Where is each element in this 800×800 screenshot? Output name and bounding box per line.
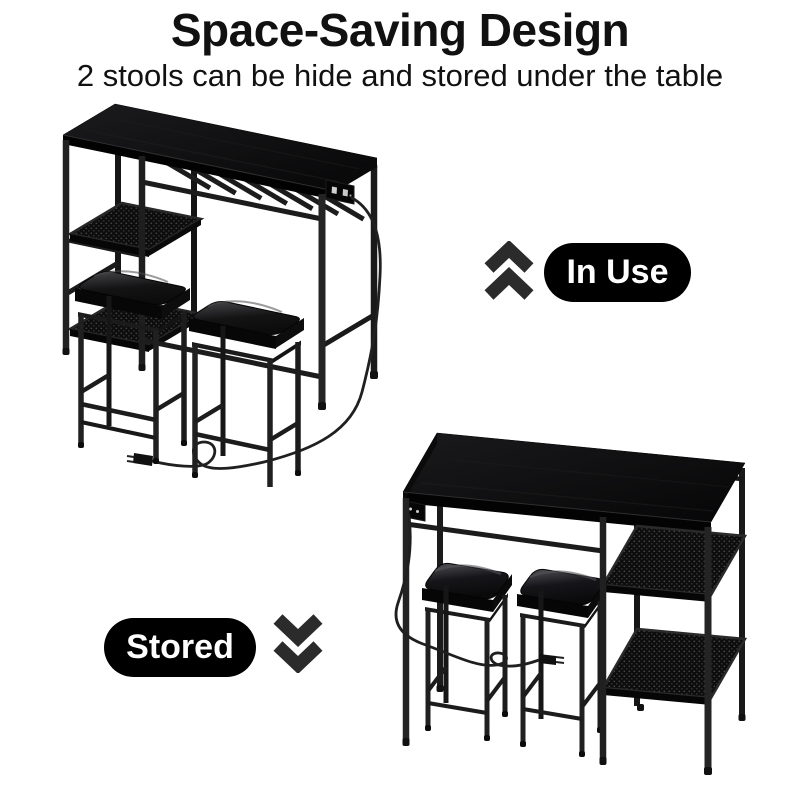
- stored-badge-label: Stored: [126, 628, 234, 667]
- in-use-badge-label: In Use: [566, 253, 668, 292]
- double-chevron-down-icon: [271, 611, 325, 673]
- header: Space-Saving Design 2 stools can be hide…: [0, 4, 800, 94]
- table-in-use-figure: [50, 92, 405, 487]
- table2-tabletop: [403, 433, 745, 533]
- table2-mesh-shelves: [603, 526, 745, 705]
- stool-left: [75, 271, 190, 464]
- page-subtitle: 2 stools can be hide and stored under th…: [0, 58, 800, 94]
- stool-right: [189, 301, 304, 487]
- double-chevron-up-icon: [482, 241, 536, 303]
- in-use-badge: In Use: [544, 243, 691, 302]
- table-stored-figure: [393, 425, 798, 800]
- stored-badge: Stored: [104, 618, 256, 677]
- page-title: Space-Saving Design: [0, 4, 800, 56]
